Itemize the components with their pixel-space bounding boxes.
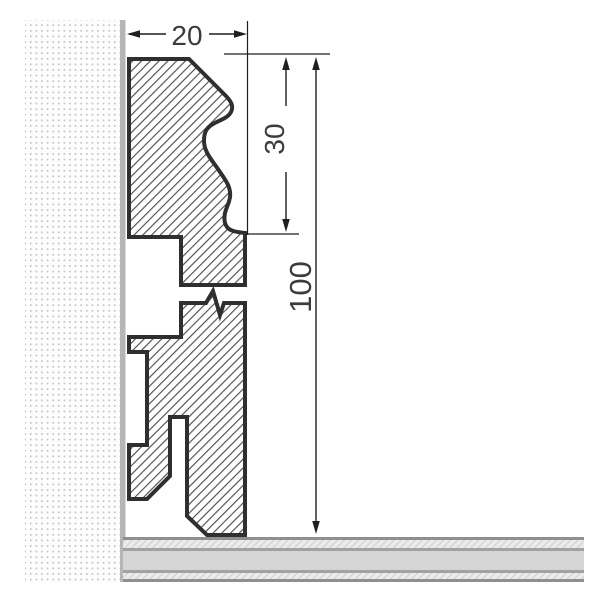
dim-width-arrow-left-icon bbox=[127, 30, 140, 38]
floor-core-layer bbox=[123, 551, 584, 570]
dim-30-arrow-up-icon bbox=[282, 57, 290, 70]
technical-drawing-page: 20 30 100 bbox=[0, 0, 604, 604]
floor-lower-hatch-layer bbox=[123, 573, 584, 579]
floor-upper-hatch-layer bbox=[123, 540, 584, 548]
dimension-top-section-height: 30 bbox=[259, 57, 290, 232]
dim-30-label: 30 bbox=[259, 123, 290, 154]
dim-100-arrow-down-icon bbox=[312, 521, 320, 534]
dim-100-label: 100 bbox=[283, 261, 318, 313]
skirting-section-drawing: 20 30 100 bbox=[0, 0, 604, 604]
dim-100-arrow-up-icon bbox=[312, 57, 320, 70]
dim-30-arrow-down-icon bbox=[282, 219, 290, 232]
wall-section bbox=[25, 20, 126, 582]
skirting-bottom-profile bbox=[129, 291, 245, 535]
dimension-width: 20 bbox=[127, 20, 247, 51]
wall-stipple-area bbox=[25, 20, 120, 582]
floor-section bbox=[123, 537, 584, 582]
wall-surface-strip bbox=[120, 20, 126, 582]
floor-mid-line-1 bbox=[123, 548, 584, 551]
floor-bottom-line bbox=[123, 579, 584, 582]
dim-width-label: 20 bbox=[171, 20, 202, 51]
floor-top-line bbox=[123, 537, 584, 540]
skirting-top-profile bbox=[129, 59, 245, 285]
dim-width-arrow-right-icon bbox=[234, 30, 247, 38]
floor-mid-line-2 bbox=[123, 570, 584, 573]
